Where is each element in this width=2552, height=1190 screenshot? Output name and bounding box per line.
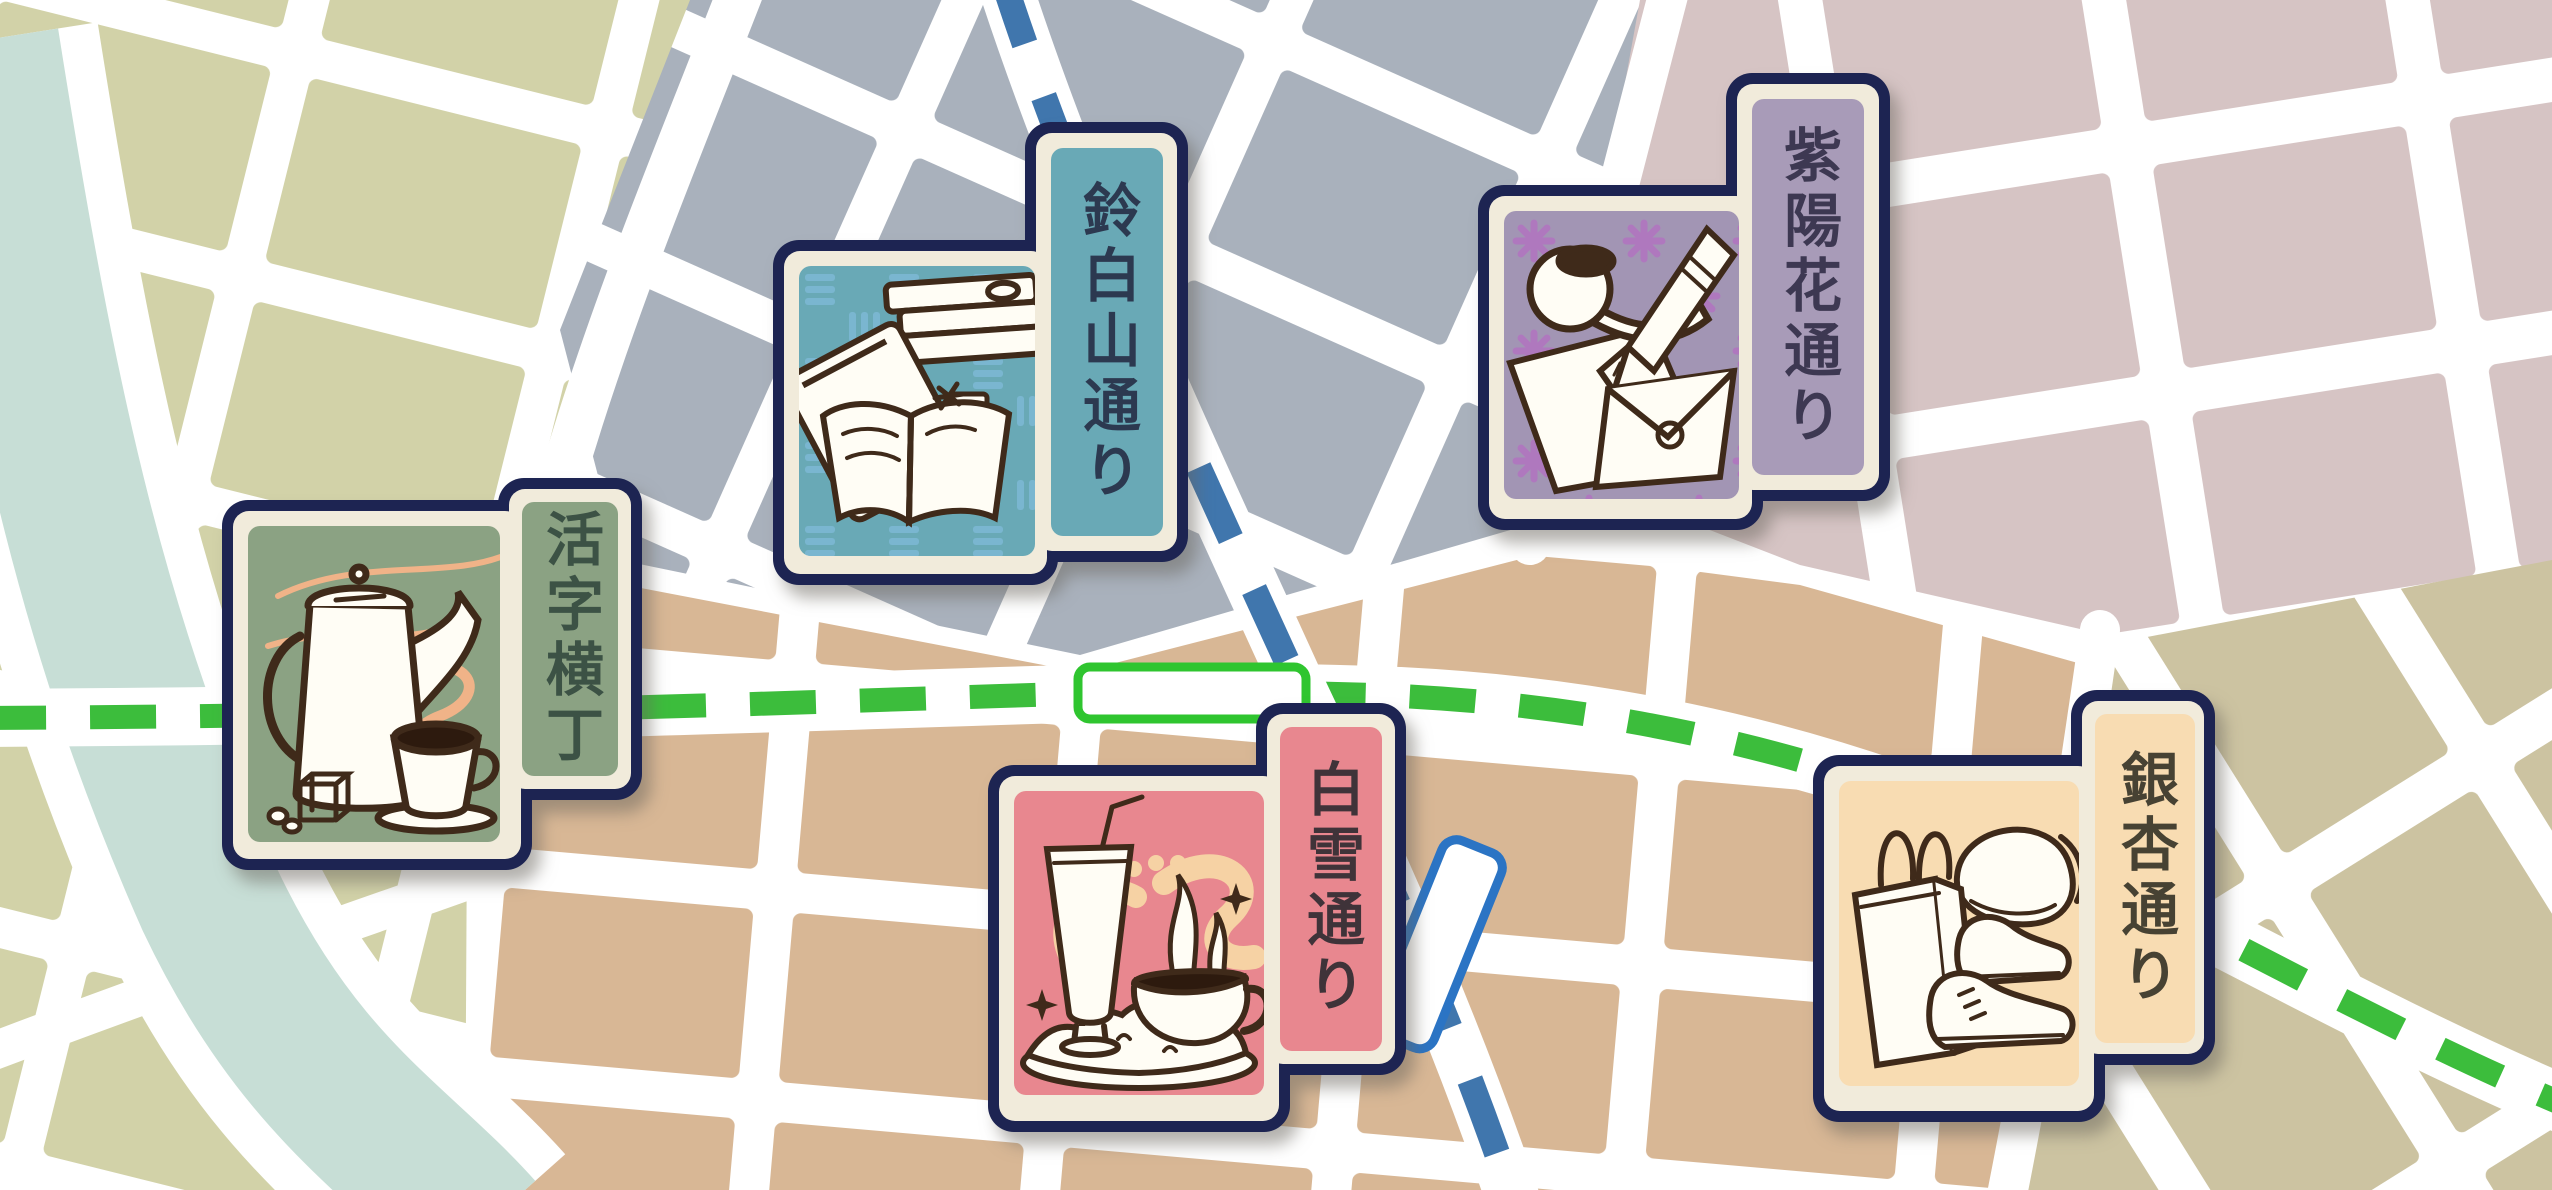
marker-suzushiroyama-dori[interactable]: 鈴白山通り — [773, 122, 1188, 585]
street-label: 紫陽花通り — [1752, 99, 1864, 475]
illustration-coffee — [248, 526, 500, 842]
illustration-books — [799, 266, 1035, 556]
illustration-pipe-letter — [1504, 211, 1739, 499]
street-name: 活字横丁 — [541, 509, 599, 769]
marker-ajisai-dori[interactable]: 紫陽花通り — [1478, 73, 1890, 530]
street-name: 白雪通り — [1302, 759, 1360, 1019]
street-name: 銀杏通り — [2116, 749, 2174, 1009]
marker-icho-dori[interactable]: 銀杏通り — [1813, 690, 2215, 1122]
marker-katsuji-yokocho[interactable]: 活字横丁 — [222, 478, 642, 870]
street-label: 銀杏通り — [2095, 714, 2195, 1043]
beret-hat — [1957, 830, 2079, 925]
marker-shirayuki-dori[interactable]: 白雪通り — [988, 703, 1406, 1132]
envelope — [1596, 371, 1734, 487]
street-label: 白雪通り — [1280, 727, 1382, 1051]
street-name: 鈴白山通り — [1078, 180, 1136, 505]
street-label: 活字横丁 — [522, 502, 618, 776]
illustration-shopping — [1839, 781, 2079, 1086]
street-label: 鈴白山通り — [1051, 148, 1163, 536]
street-name: 紫陽花通り — [1779, 125, 1837, 450]
open-book — [823, 402, 1009, 522]
illustration-soda-curry — [1014, 791, 1264, 1095]
